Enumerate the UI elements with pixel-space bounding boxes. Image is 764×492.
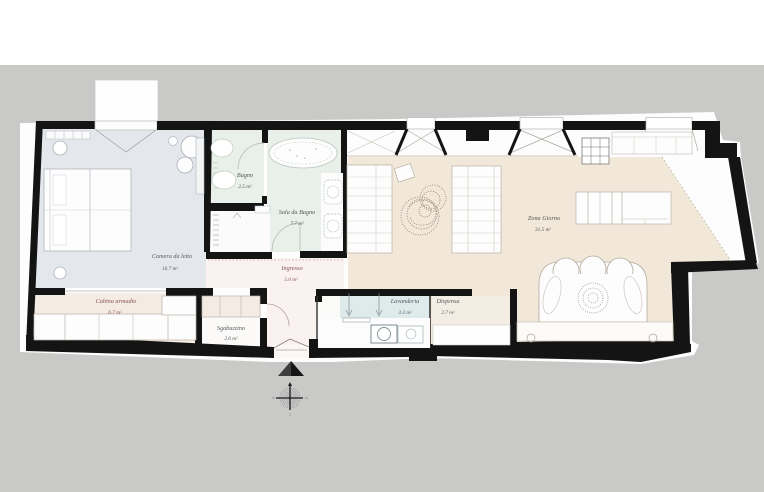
svg-text:Camera da letto: Camera da letto (152, 253, 192, 260)
svg-text:7.7 m²: 7.7 m² (290, 221, 304, 227)
svg-text:Cabina armadio: Cabina armadio (96, 298, 137, 305)
svg-text:6.7 m²: 6.7 m² (108, 310, 122, 316)
svg-text:Lavanderia: Lavanderia (390, 298, 420, 305)
svg-text:Bagno: Bagno (237, 172, 253, 179)
svg-text:Sala da Bagno: Sala da Bagno (279, 209, 315, 216)
svg-text:31.5 m²: 31.5 m² (535, 227, 551, 233)
svg-text:5.0 m²: 5.0 m² (284, 277, 298, 283)
svg-text:2.7 m²: 2.7 m² (441, 310, 455, 316)
svg-text:2.5 m²: 2.5 m² (238, 184, 252, 190)
svg-text:16.7 m²: 16.7 m² (162, 266, 178, 272)
svg-text:Zona Giorno: Zona Giorno (528, 215, 560, 222)
svg-text:Sgabuzzino: Sgabuzzino (217, 325, 245, 332)
svg-text:Ingresso: Ingresso (280, 265, 302, 272)
svg-text:2.6 m²: 2.6 m² (224, 336, 238, 342)
svg-text:2: 2 (289, 412, 291, 417)
svg-text:3.3 m²: 3.3 m² (398, 310, 412, 316)
svg-text:Dispensa: Dispensa (435, 298, 459, 305)
